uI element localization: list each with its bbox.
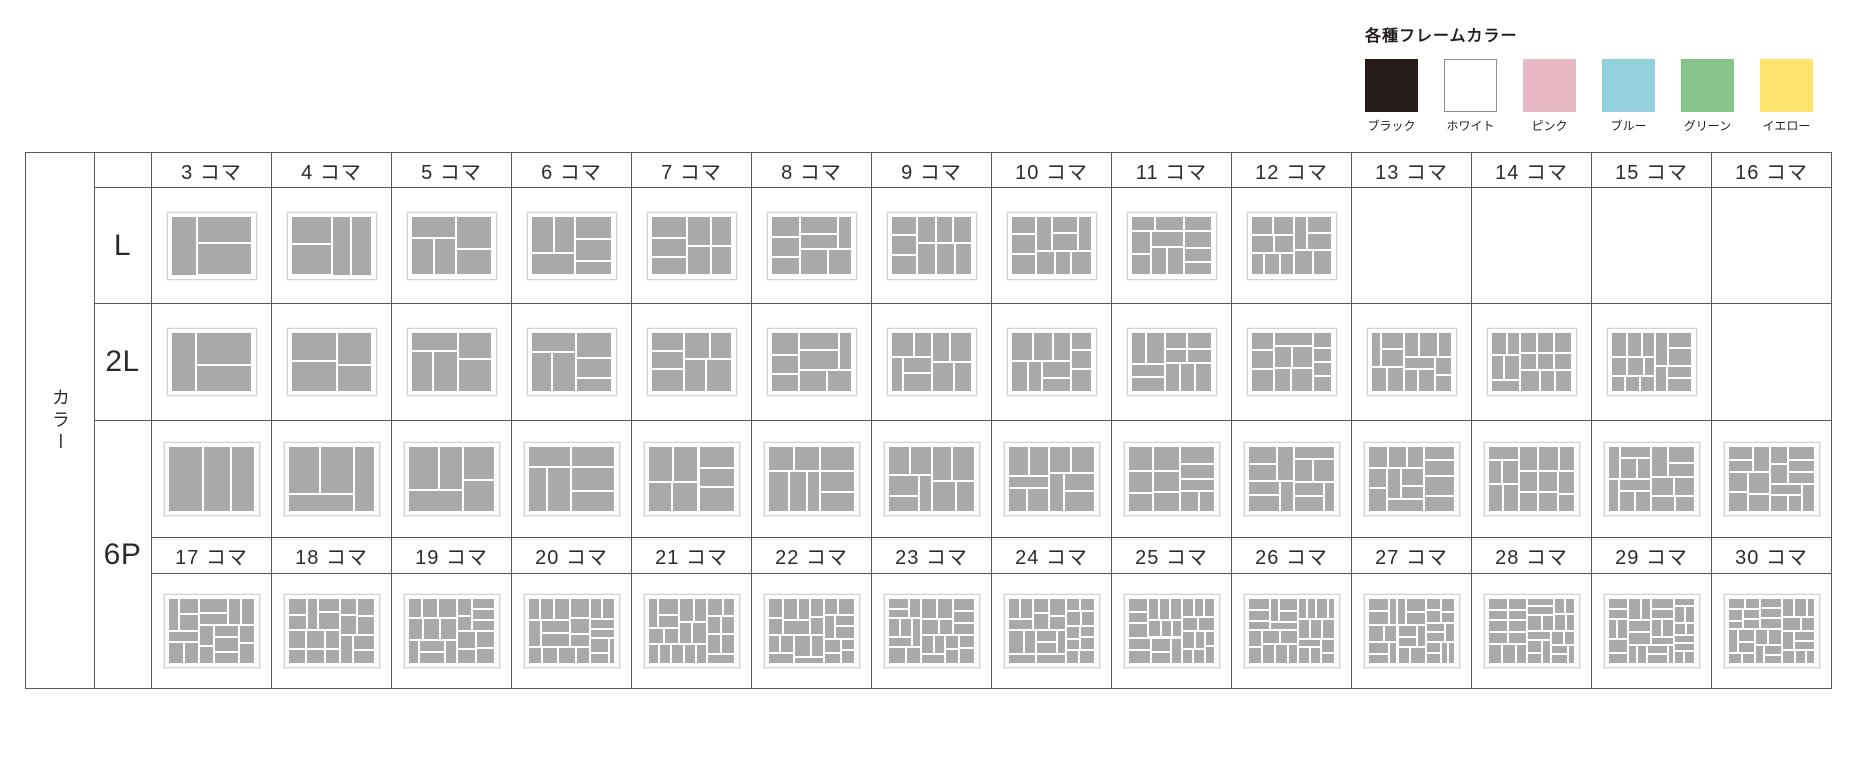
photo-slot xyxy=(769,599,782,617)
photo-slot xyxy=(1314,460,1334,481)
photo-slot xyxy=(1556,371,1571,391)
layout-thumbnail xyxy=(527,212,617,280)
column-header: 8 コマ xyxy=(751,153,871,187)
photo-slot xyxy=(801,217,837,233)
layout-thumbnail xyxy=(164,442,260,516)
photo-slot xyxy=(1289,645,1297,663)
photo-slot xyxy=(1154,447,1179,470)
photo-slot xyxy=(892,217,916,234)
frame-cell-6p_top-3 xyxy=(151,420,271,537)
photo-slot xyxy=(1385,626,1396,641)
photo-slot xyxy=(1427,599,1440,609)
photo-slot xyxy=(1402,469,1424,485)
photo-slot xyxy=(652,370,684,391)
frame-cell-6p_top-13 xyxy=(1351,420,1471,537)
photo-slot xyxy=(1769,630,1781,644)
photo-slot xyxy=(1372,333,1381,366)
layout-thumbnail xyxy=(647,328,737,396)
photo-slot xyxy=(1054,333,1070,360)
photo-slot xyxy=(1132,232,1151,253)
photo-slot xyxy=(1442,643,1448,663)
photo-slot xyxy=(1656,333,1667,365)
photo-slot xyxy=(1609,654,1627,663)
photo-slot xyxy=(1369,626,1384,641)
layout-thumbnail xyxy=(524,442,620,516)
photo-slot xyxy=(1539,472,1557,491)
frame-cell-2l-6 xyxy=(511,303,631,420)
photo-slot xyxy=(1652,638,1673,644)
photo-slot xyxy=(1528,616,1540,630)
frame-cell-6p_top-11 xyxy=(1111,420,1231,537)
photo-slot xyxy=(1249,622,1270,629)
photo-slot xyxy=(1743,654,1753,663)
empty-cell xyxy=(1711,303,1831,420)
photo-slot xyxy=(1675,478,1694,495)
photo-slot xyxy=(1276,645,1288,663)
frame-cell-2l-5 xyxy=(391,303,511,420)
photo-slot xyxy=(1181,480,1215,490)
color-swatch-item: ホワイト xyxy=(1444,59,1497,134)
photo-slot xyxy=(577,359,612,377)
photo-slot xyxy=(649,645,659,663)
photo-slot xyxy=(1528,632,1550,639)
empty-cell xyxy=(1711,187,1831,303)
photo-slot xyxy=(1299,599,1306,618)
photo-slot xyxy=(1249,465,1277,480)
photo-slot xyxy=(1037,252,1054,275)
photo-slot xyxy=(659,599,678,614)
photo-slot xyxy=(548,468,569,511)
photo-slot xyxy=(1795,599,1806,616)
photo-slot xyxy=(1050,447,1070,472)
photo-slot xyxy=(1072,370,1091,391)
photo-slot xyxy=(811,599,823,616)
photo-slot xyxy=(1194,650,1204,663)
photo-slot xyxy=(889,648,905,663)
layout-thumbnail xyxy=(1604,594,1700,668)
photo-slot xyxy=(1675,599,1694,605)
photo-slot xyxy=(889,638,912,646)
photo-slot xyxy=(1427,643,1440,652)
photo-slot xyxy=(215,653,237,663)
photo-slot xyxy=(769,472,788,511)
layout-thumbnail xyxy=(524,594,620,668)
photo-slot xyxy=(326,631,339,648)
photo-slot xyxy=(464,481,494,511)
photo-slot xyxy=(1195,599,1203,616)
photo-slot xyxy=(1147,333,1163,363)
photo-slot xyxy=(1369,469,1387,487)
photo-slot xyxy=(889,447,909,474)
photo-slot xyxy=(459,360,491,391)
photo-slot xyxy=(1552,655,1567,663)
photo-slot xyxy=(341,616,356,633)
frame-cell-6p_bottom-22 xyxy=(751,573,871,688)
photo-slot xyxy=(1652,497,1674,511)
photo-slot xyxy=(1050,617,1065,629)
photo-slot xyxy=(1369,599,1389,610)
photo-slot xyxy=(1407,599,1425,611)
photo-slot xyxy=(458,617,471,630)
photo-slot xyxy=(1621,447,1650,457)
photo-slot xyxy=(935,636,944,653)
column-header: 17 コマ xyxy=(151,537,271,573)
layout-thumbnail xyxy=(644,442,740,516)
photo-slot xyxy=(1807,651,1814,663)
photo-slot xyxy=(172,333,196,391)
photo-slot xyxy=(458,632,475,648)
photo-slot xyxy=(1199,618,1215,630)
photo-slot xyxy=(1492,356,1504,379)
photo-slot xyxy=(1676,497,1695,511)
photo-slot xyxy=(1765,656,1781,663)
photo-slot xyxy=(1249,496,1279,511)
photo-slot xyxy=(1034,614,1048,629)
layout-thumbnail xyxy=(764,442,860,516)
photo-slot xyxy=(423,599,437,617)
photo-slot xyxy=(808,472,819,511)
photo-slot xyxy=(326,650,339,663)
color-swatch-item: ブルー xyxy=(1602,59,1655,134)
photo-slot xyxy=(1520,493,1537,511)
photo-slot xyxy=(591,654,609,663)
photo-slot xyxy=(1293,347,1312,367)
photo-slot xyxy=(532,353,552,391)
frame-cell-6p_bottom-21 xyxy=(631,573,751,688)
frame-cell-l-8 xyxy=(751,187,871,303)
photo-slot xyxy=(892,333,913,356)
layout-grid: 3 コマ4 コマ5 コマ6 コマ7 コマ8 コマ9 コマ10 コマ11 コマ12… xyxy=(151,153,1831,688)
photo-slot xyxy=(354,636,375,650)
photo-slot xyxy=(1620,492,1634,511)
photo-slot xyxy=(1668,379,1691,391)
photo-slot xyxy=(1652,599,1673,608)
photo-slot xyxy=(1028,489,1049,511)
photo-slot xyxy=(1072,447,1094,472)
photo-slot xyxy=(1489,621,1507,631)
photo-slot xyxy=(1012,255,1036,274)
layout-thumbnail xyxy=(1364,442,1460,516)
photo-slot xyxy=(1295,460,1312,481)
photo-slot xyxy=(1521,333,1535,352)
layout-thumbnail xyxy=(284,594,380,668)
photo-slot xyxy=(1668,367,1691,378)
photo-slot xyxy=(464,447,494,479)
photo-slot xyxy=(1521,371,1538,391)
frame-cell-6p_top-16 xyxy=(1711,420,1831,537)
photo-slot xyxy=(1795,642,1814,650)
photo-slot xyxy=(576,262,611,274)
photo-slot xyxy=(1206,632,1215,645)
empty-cell xyxy=(1591,187,1711,303)
photo-slot xyxy=(1168,248,1183,274)
photo-slot xyxy=(1739,643,1754,652)
frame-cell-6p_top-5 xyxy=(391,420,511,537)
photo-slot xyxy=(1783,618,1800,630)
photo-slot xyxy=(1082,612,1095,625)
frame-cell-6p_bottom-30 xyxy=(1711,573,1831,688)
photo-slot xyxy=(1669,464,1695,476)
photo-slot xyxy=(769,654,793,663)
photo-slot xyxy=(1609,610,1627,617)
photo-slot xyxy=(956,244,972,275)
photo-slot xyxy=(784,621,809,633)
photo-slot xyxy=(198,217,251,243)
column-header: 26 コマ xyxy=(1231,537,1351,573)
photo-slot xyxy=(529,468,547,511)
photo-slot xyxy=(1652,620,1661,636)
layout-thumbnail xyxy=(887,212,977,280)
photo-slot xyxy=(800,333,839,349)
photo-slot xyxy=(543,648,558,663)
photo-slot xyxy=(1555,333,1572,352)
layout-thumbnail xyxy=(1004,442,1100,516)
photo-slot xyxy=(889,599,909,608)
frame-cell-l-5 xyxy=(391,187,511,303)
photo-slot xyxy=(1425,477,1454,495)
photo-slot xyxy=(572,468,615,490)
layout-thumbnail xyxy=(767,212,857,280)
photo-slot xyxy=(960,649,974,663)
photo-slot xyxy=(572,492,615,511)
photo-slot xyxy=(1281,482,1294,511)
photo-slot xyxy=(1281,631,1298,643)
photo-slot xyxy=(1621,459,1636,478)
layout-thumbnail xyxy=(887,328,977,396)
photo-slot xyxy=(1555,599,1564,613)
photo-slot xyxy=(1249,648,1262,663)
photo-slot xyxy=(292,245,332,275)
frame-color-legend: 各種フレームカラー ブラックホワイトピンクブルーグリーンイエロー xyxy=(1365,22,1813,134)
photo-slot xyxy=(1744,610,1759,617)
photo-slot xyxy=(708,617,719,633)
photo-slot xyxy=(1489,447,1519,459)
photo-slot xyxy=(1729,493,1747,511)
photo-slot xyxy=(1053,234,1076,250)
photo-slot xyxy=(1265,254,1279,274)
photo-slot xyxy=(1419,370,1434,391)
photo-slot xyxy=(412,239,434,274)
photo-slot xyxy=(1609,599,1627,608)
photo-slot xyxy=(409,641,419,663)
photo-slot xyxy=(1132,365,1164,376)
photo-slot xyxy=(1489,485,1502,511)
photo-slot xyxy=(1292,369,1311,391)
color-swatch xyxy=(1523,59,1576,112)
column-header: 13 コマ xyxy=(1351,153,1471,187)
photo-slot xyxy=(708,635,720,653)
photo-slot xyxy=(1675,644,1694,649)
layout-thumbnail xyxy=(1484,442,1580,516)
frame-cell-l-11 xyxy=(1111,187,1231,303)
photo-slot xyxy=(1252,217,1272,234)
photo-slot xyxy=(1050,474,1063,511)
photo-slot xyxy=(1609,447,1619,478)
photo-slot xyxy=(1278,447,1293,480)
photo-slot xyxy=(938,599,952,618)
photo-slot xyxy=(800,351,839,369)
photo-slot xyxy=(1129,494,1152,511)
frame-cell-2l-8 xyxy=(751,303,871,420)
photo-slot xyxy=(652,239,687,256)
photo-slot xyxy=(409,619,423,639)
photo-slot xyxy=(1505,356,1519,379)
layout-thumbnail xyxy=(644,594,740,668)
photo-slot xyxy=(1528,654,1541,663)
photo-slot xyxy=(1528,599,1553,605)
photo-slot xyxy=(1025,631,1035,653)
photo-slot xyxy=(1382,333,1403,348)
photo-slot xyxy=(1521,354,1535,369)
photo-slot xyxy=(772,238,799,256)
photo-slot xyxy=(412,333,458,350)
photo-slot xyxy=(1314,377,1332,391)
photo-slot xyxy=(1795,632,1814,640)
photo-slot xyxy=(532,217,553,252)
photo-slot xyxy=(1729,599,1744,608)
photo-slot xyxy=(685,333,709,358)
layout-thumbnail xyxy=(1124,594,1220,668)
photo-slot xyxy=(711,333,731,358)
layout-thumbnail xyxy=(287,328,377,396)
photo-slot xyxy=(1152,653,1169,663)
photo-slot xyxy=(712,217,731,246)
photo-slot xyxy=(1280,612,1297,621)
photo-slot xyxy=(842,651,855,663)
photo-slot xyxy=(1072,351,1091,368)
layout-thumbnail xyxy=(1604,442,1700,516)
photo-slot xyxy=(319,613,339,628)
frame-cell-6p_top-7 xyxy=(631,420,751,537)
layout-thumbnail xyxy=(884,594,980,668)
color-column-label: カラー xyxy=(47,388,73,454)
photo-slot xyxy=(532,254,575,275)
frame-cell-l-7 xyxy=(631,187,751,303)
photo-slot xyxy=(769,636,780,652)
photo-slot xyxy=(1012,362,1027,391)
photo-slot xyxy=(1612,377,1624,391)
layout-thumbnail xyxy=(527,328,617,396)
photo-slot xyxy=(440,447,462,489)
photo-slot xyxy=(1162,621,1171,637)
photo-slot xyxy=(529,447,570,466)
photo-slot xyxy=(473,610,494,618)
frame-cell-6p_top-10 xyxy=(991,420,1111,537)
photo-slot xyxy=(1425,497,1454,511)
photo-slot xyxy=(1749,473,1769,493)
layout-thumbnail xyxy=(407,328,497,396)
photo-slot xyxy=(1729,654,1742,663)
photo-slot xyxy=(1761,619,1781,628)
photo-slot xyxy=(1030,447,1048,475)
photo-slot xyxy=(1295,497,1322,511)
photo-slot xyxy=(1756,630,1767,644)
photo-slot xyxy=(652,333,684,350)
frame-cell-6p_bottom-25 xyxy=(1111,573,1231,688)
photo-slot xyxy=(341,599,356,614)
layout-thumbnail xyxy=(1247,328,1337,396)
color-swatch xyxy=(1444,59,1497,112)
frame-cell-l-12 xyxy=(1231,187,1351,303)
photo-slot xyxy=(922,655,944,663)
photo-slot xyxy=(1408,447,1423,467)
frame-cell-2l-14 xyxy=(1471,303,1591,420)
column-header: 23 コマ xyxy=(871,537,991,573)
photo-slot xyxy=(901,619,912,636)
photo-slot xyxy=(1541,371,1554,391)
photo-slot xyxy=(828,371,852,391)
photo-slot xyxy=(659,616,678,627)
photo-slot xyxy=(922,620,937,634)
photo-slot xyxy=(1638,646,1645,663)
column-header: 18 コマ xyxy=(271,537,391,573)
photo-slot xyxy=(933,447,951,480)
photo-slot xyxy=(918,217,935,242)
photo-slot xyxy=(1538,354,1553,369)
color-swatch xyxy=(1365,59,1418,112)
photo-slot xyxy=(1271,599,1278,621)
photo-slot xyxy=(1295,483,1322,495)
photo-slot xyxy=(1771,485,1800,494)
photo-slot xyxy=(1183,599,1193,616)
photo-slot xyxy=(1638,459,1651,478)
photo-slot xyxy=(1317,599,1326,618)
photo-slot xyxy=(240,644,255,663)
photo-slot xyxy=(424,619,439,639)
photo-slot xyxy=(1322,654,1335,663)
photo-slot xyxy=(649,629,663,643)
photo-slot xyxy=(1369,447,1388,467)
photo-slot xyxy=(1503,461,1519,483)
photo-slot xyxy=(1675,624,1685,634)
photo-slot xyxy=(892,358,903,391)
photo-slot xyxy=(172,217,197,275)
frame-cell-6p_bottom-19 xyxy=(391,573,511,688)
photo-slot xyxy=(1299,640,1320,646)
photo-slot xyxy=(1789,473,1814,483)
photo-slot xyxy=(1185,217,1211,231)
photo-slot xyxy=(1129,624,1148,637)
photo-slot xyxy=(1252,351,1273,368)
photo-slot xyxy=(1188,333,1212,348)
photo-slot xyxy=(1154,472,1179,492)
photo-slot xyxy=(1489,645,1502,663)
photo-slot xyxy=(435,239,455,274)
photo-slot xyxy=(1729,461,1753,471)
photo-slot xyxy=(784,599,797,619)
photo-slot xyxy=(529,599,539,619)
photo-slot xyxy=(1021,599,1031,618)
photo-slot xyxy=(722,617,735,633)
photo-slot xyxy=(289,447,319,493)
photo-slot xyxy=(1152,639,1169,651)
photo-slot xyxy=(457,217,491,248)
photo-slot xyxy=(1565,632,1574,644)
photo-slot xyxy=(1754,447,1769,471)
photo-slot xyxy=(1612,333,1627,356)
photo-slot xyxy=(1543,616,1553,630)
photo-slot xyxy=(911,447,931,474)
column-header: 29 コマ xyxy=(1591,537,1711,573)
photo-slot xyxy=(1789,496,1801,511)
photo-slot xyxy=(1628,358,1643,375)
photo-slot xyxy=(1181,465,1215,478)
photo-slot xyxy=(1560,447,1574,470)
photo-slot xyxy=(577,379,612,391)
photo-slot xyxy=(1675,607,1683,622)
photo-slot xyxy=(576,240,611,260)
photo-slot xyxy=(904,374,930,391)
